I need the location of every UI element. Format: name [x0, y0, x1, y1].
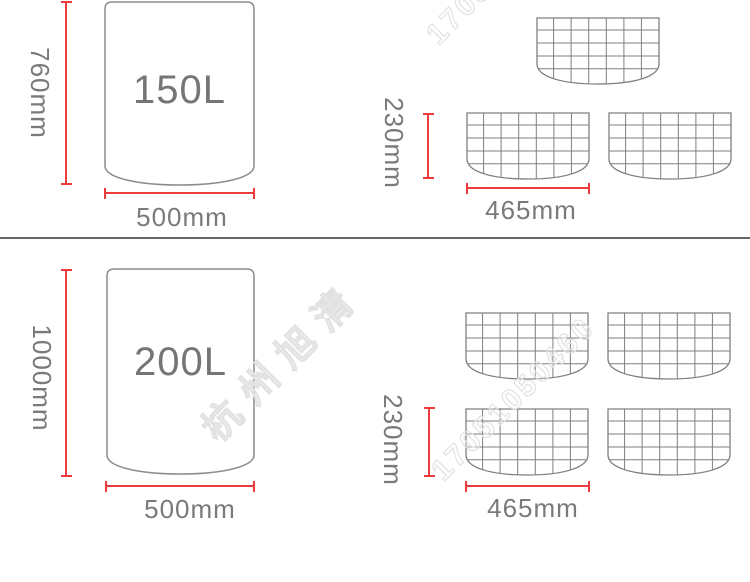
mesh-height-label-top: 230mm	[378, 88, 410, 198]
tank-150l-volume-label: 150L	[104, 68, 255, 113]
dimension-line-mesh-height-top	[427, 113, 429, 179]
mesh-height-label-bottom: 230mm	[377, 385, 409, 495]
tank-200l-volume-label: 200L	[106, 340, 255, 385]
product-dimension-diagram: 150L 760mm 500mm 230mm 465mm 200L 1000mm…	[0, 0, 750, 582]
mesh-panel	[466, 112, 590, 180]
mesh-panel	[465, 408, 589, 476]
mesh-panel	[607, 408, 731, 476]
tank-150l-diameter-label: 500mm	[112, 201, 252, 233]
dimension-line-mesh-width-top	[466, 187, 590, 189]
mesh-width-label-top: 465mm	[461, 194, 601, 226]
mesh-panel	[465, 312, 589, 380]
section-divider	[0, 237, 750, 239]
dimension-line-tank150-diameter	[104, 192, 255, 194]
dimension-line-mesh-width-bottom	[465, 485, 590, 487]
mesh-panel	[536, 17, 660, 85]
mesh-panel	[607, 312, 731, 380]
dimension-line-tank200-height	[65, 269, 67, 477]
mesh-panel	[608, 112, 732, 180]
tank-200l-diameter-label: 500mm	[120, 493, 260, 525]
dimension-line-tank200-diameter	[105, 485, 255, 487]
mesh-width-label-bottom: 465mm	[463, 492, 603, 524]
tank-150l-height-label: 760mm	[24, 38, 56, 148]
tank-200l-height-label: 1000mm	[26, 323, 58, 433]
dimension-line-mesh-height-bottom	[428, 407, 430, 477]
dimension-line-tank150-height	[65, 1, 67, 185]
